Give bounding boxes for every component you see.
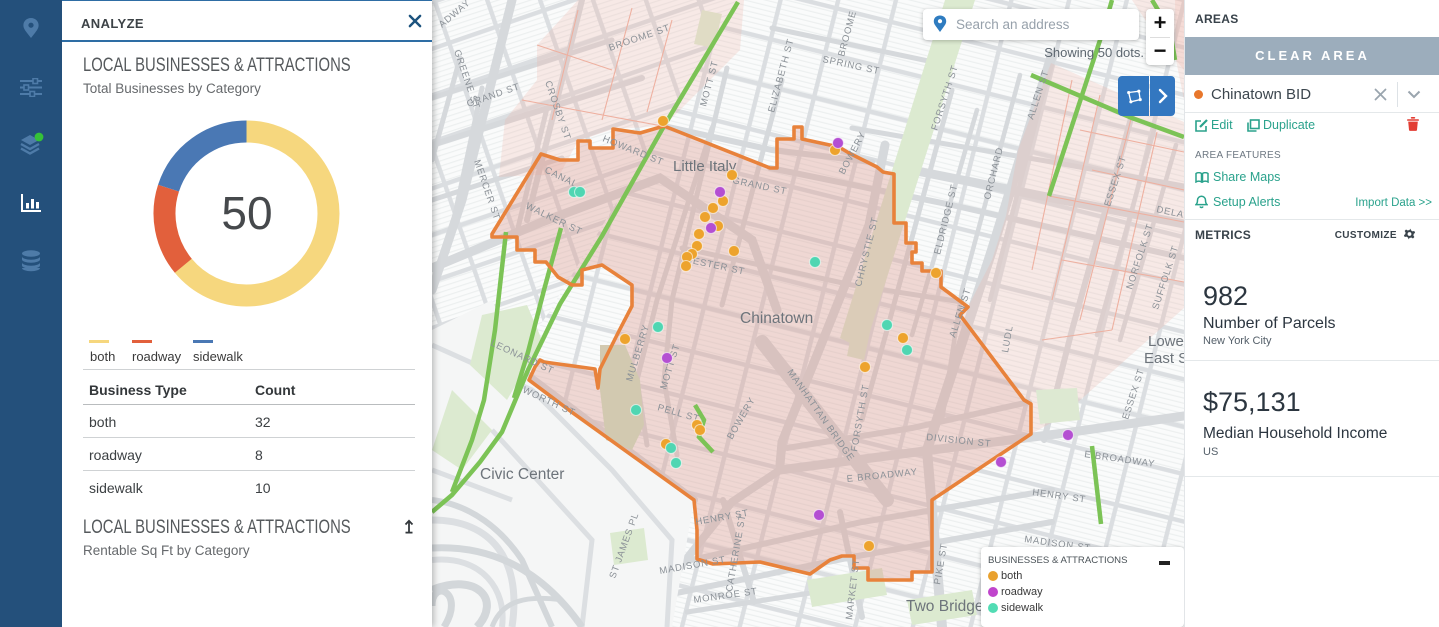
svg-text:Civic Center: Civic Center: [480, 466, 564, 483]
svg-text:Lower: Lower: [1148, 333, 1184, 350]
svg-text:East Side: East Side: [1144, 350, 1184, 367]
svg-text:Chinatown: Chinatown: [740, 310, 813, 327]
svg-text:Two Bridges: Two Bridges: [906, 598, 992, 615]
